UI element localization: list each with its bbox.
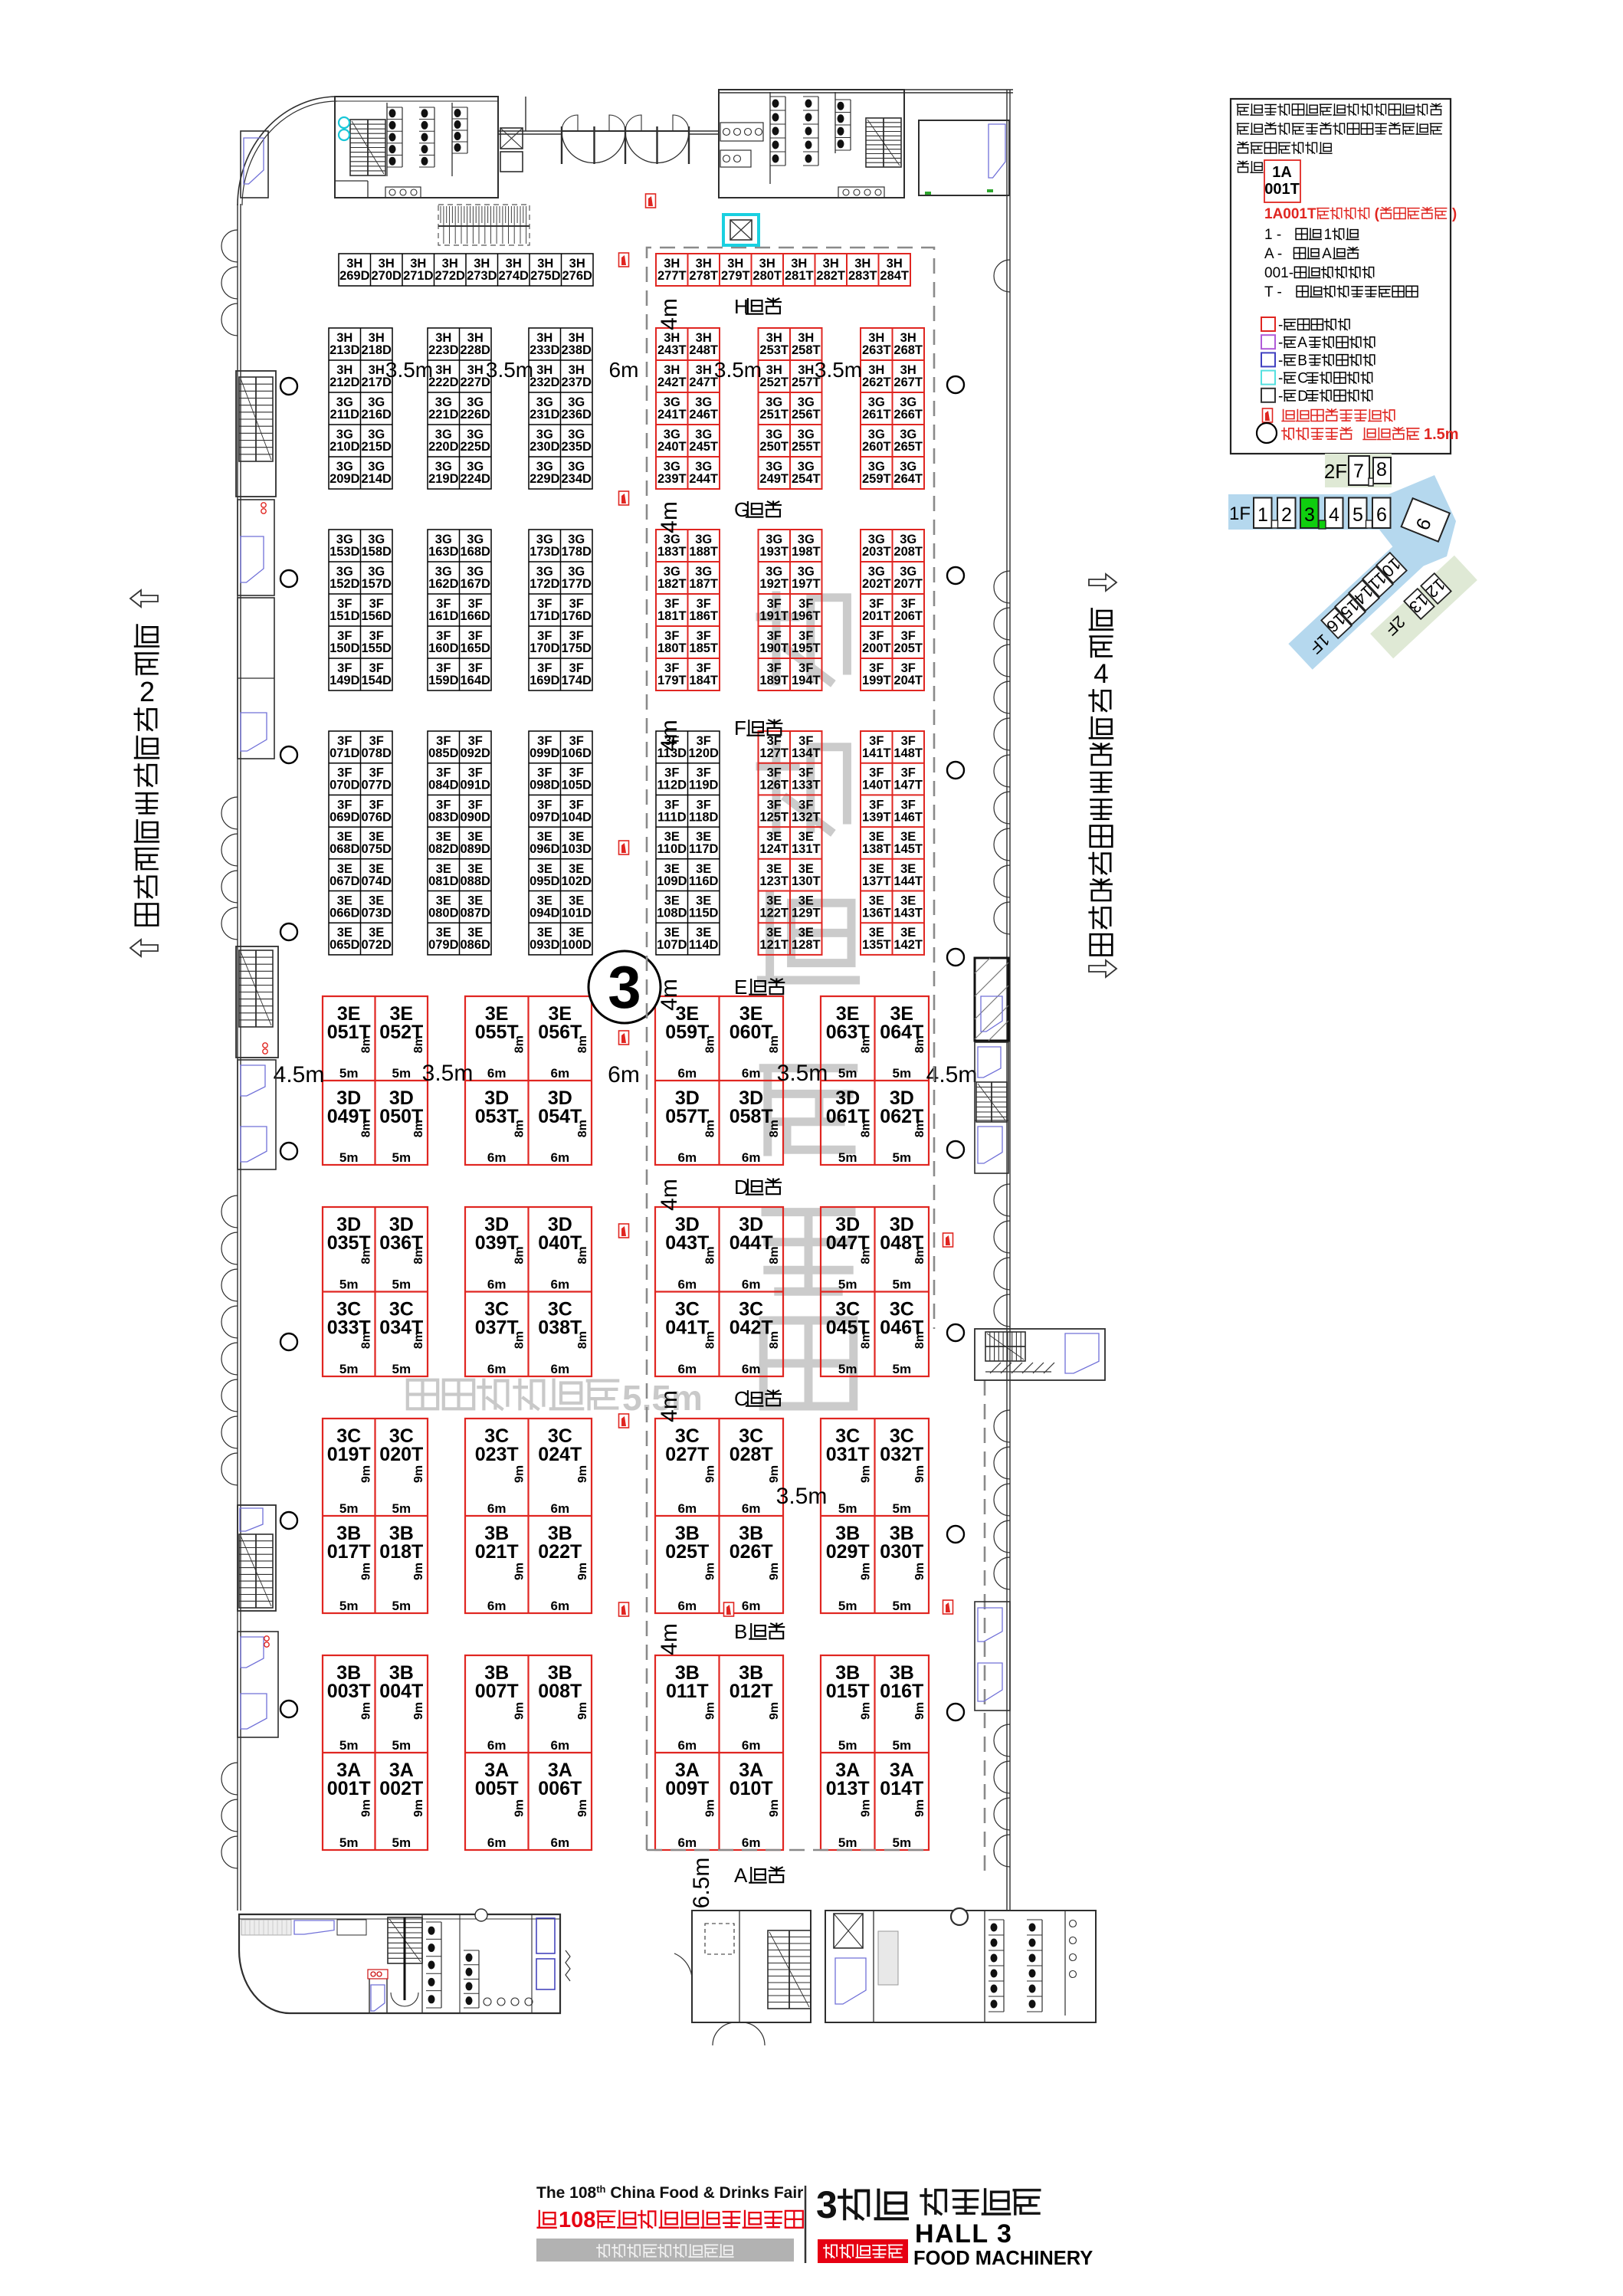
svg-text:8m: 8m <box>913 1120 926 1137</box>
svg-text:032T: 032T <box>880 1444 923 1465</box>
svg-text:175D: 175D <box>561 641 592 655</box>
svg-text:6m: 6m <box>678 1835 697 1850</box>
svg-text:255T: 255T <box>792 440 821 454</box>
svg-text:178D: 178D <box>561 545 592 559</box>
svg-text:150D: 150D <box>330 641 360 655</box>
svg-text:089D: 089D <box>460 842 490 856</box>
svg-text:174D: 174D <box>561 674 592 687</box>
svg-text:6m: 6m <box>487 1501 507 1516</box>
svg-text:143T: 143T <box>893 907 923 920</box>
svg-text:253T: 253T <box>759 343 789 357</box>
svg-text:108: 108 <box>559 2208 595 2232</box>
svg-text:6m: 6m <box>487 1150 507 1165</box>
svg-text:275D: 275D <box>530 269 561 283</box>
svg-text:5m: 5m <box>339 1501 359 1516</box>
svg-text:212D: 212D <box>330 376 360 389</box>
svg-text:039T: 039T <box>475 1232 519 1254</box>
svg-text:115D: 115D <box>689 907 719 920</box>
svg-text:6m: 6m <box>487 1738 507 1753</box>
svg-text:158D: 158D <box>361 545 392 559</box>
svg-text:3.5m: 3.5m <box>776 1484 828 1509</box>
svg-text:5m: 5m <box>838 1599 857 1613</box>
svg-text:131T: 131T <box>792 842 821 856</box>
svg-text:1: 1 <box>1324 227 1333 243</box>
svg-text:279T: 279T <box>721 269 750 283</box>
svg-text:160D: 160D <box>428 641 459 655</box>
svg-text:224D: 224D <box>460 472 490 486</box>
svg-text:130T: 130T <box>792 874 821 888</box>
svg-text:8m: 8m <box>513 1035 526 1053</box>
svg-text:093D: 093D <box>530 938 560 952</box>
svg-text:136T: 136T <box>862 907 891 920</box>
svg-text:171D: 171D <box>530 609 560 623</box>
svg-text:9m: 9m <box>913 1563 926 1580</box>
svg-text:254T: 254T <box>792 472 821 486</box>
svg-text:198T: 198T <box>792 545 821 559</box>
svg-text:187T: 187T <box>689 577 718 591</box>
svg-text:148T: 148T <box>893 746 923 760</box>
svg-text:194T: 194T <box>792 674 821 687</box>
svg-text:088D: 088D <box>460 874 490 888</box>
svg-text:038T: 038T <box>538 1317 582 1339</box>
svg-text:280T: 280T <box>752 269 782 283</box>
svg-text:144T: 144T <box>893 874 923 888</box>
svg-text:281T: 281T <box>785 269 814 283</box>
svg-text:065D: 065D <box>330 938 360 952</box>
svg-text:8m: 8m <box>360 1120 373 1137</box>
svg-text:120D: 120D <box>688 746 719 760</box>
svg-text:162D: 162D <box>428 577 459 591</box>
svg-text:6m: 6m <box>742 1501 761 1516</box>
svg-text:228D: 228D <box>460 343 490 357</box>
svg-text:066D: 066D <box>330 907 360 920</box>
svg-text:098D: 098D <box>530 779 560 792</box>
svg-text:3: 3 <box>816 2183 838 2226</box>
svg-text:229D: 229D <box>530 472 560 486</box>
svg-text:1F: 1F <box>1229 503 1251 524</box>
svg-text:3.5m: 3.5m <box>486 358 533 382</box>
svg-text:6m: 6m <box>551 1150 570 1165</box>
svg-text:209D: 209D <box>330 472 360 486</box>
svg-text:001T: 001T <box>1264 181 1300 198</box>
svg-text:099D: 099D <box>530 746 560 760</box>
svg-text:202T: 202T <box>862 577 891 591</box>
svg-text:9m: 9m <box>513 1702 526 1720</box>
svg-text:248T: 248T <box>689 343 718 357</box>
svg-text:266T: 266T <box>893 408 923 421</box>
svg-text:5m: 5m <box>339 1150 359 1165</box>
svg-text:9m: 9m <box>576 1563 589 1580</box>
svg-text:6m: 6m <box>678 1362 697 1376</box>
svg-text:231D: 231D <box>530 408 560 421</box>
svg-text:167D: 167D <box>460 577 490 591</box>
svg-text:111D: 111D <box>657 810 687 824</box>
svg-text:8m: 8m <box>704 1035 717 1053</box>
svg-text:263T: 263T <box>862 343 891 357</box>
svg-text:233D: 233D <box>530 343 560 357</box>
svg-text:074D: 074D <box>361 874 392 888</box>
svg-text:087D: 087D <box>460 907 490 920</box>
svg-text:024T: 024T <box>538 1444 582 1465</box>
svg-text:119D: 119D <box>689 779 719 792</box>
svg-text:245T: 245T <box>689 440 718 454</box>
svg-text:3.5m: 3.5m <box>815 358 862 382</box>
svg-text:277T: 277T <box>657 269 687 283</box>
svg-text:5m: 5m <box>838 1066 857 1081</box>
svg-text:4m: 4m <box>657 1179 682 1211</box>
svg-text:2: 2 <box>1281 504 1292 526</box>
svg-text:243T: 243T <box>657 343 687 357</box>
svg-text:225D: 225D <box>460 440 490 454</box>
svg-text:211D: 211D <box>330 408 360 421</box>
svg-text:208T: 208T <box>893 545 923 559</box>
svg-text:009T: 009T <box>665 1778 709 1799</box>
svg-text:082D: 082D <box>428 842 459 856</box>
svg-text:268T: 268T <box>893 343 923 357</box>
svg-text:219D: 219D <box>428 472 459 486</box>
svg-text:173D: 173D <box>530 545 560 559</box>
svg-text:091D: 091D <box>460 779 490 792</box>
svg-text:067D: 067D <box>330 874 360 888</box>
svg-text:182T: 182T <box>657 577 687 591</box>
svg-text:195T: 195T <box>792 641 821 655</box>
svg-text:070D: 070D <box>330 779 360 792</box>
svg-text:019T: 019T <box>327 1444 371 1465</box>
svg-text:267T: 267T <box>893 376 923 389</box>
svg-text:1.5m: 1.5m <box>1424 426 1459 443</box>
svg-text:2F: 2F <box>1324 460 1347 483</box>
svg-text:165D: 165D <box>460 641 490 655</box>
svg-text:8m: 8m <box>913 1246 926 1264</box>
svg-text:172D: 172D <box>530 577 560 591</box>
svg-text:238D: 238D <box>561 343 592 357</box>
svg-text:161D: 161D <box>428 609 459 623</box>
svg-text:8m: 8m <box>360 1246 373 1264</box>
svg-text:5m: 5m <box>392 1150 411 1165</box>
svg-text:092D: 092D <box>460 746 490 760</box>
svg-text:053T: 053T <box>475 1106 519 1127</box>
svg-text:B: B <box>734 1620 747 1643</box>
svg-text:020T: 020T <box>379 1444 423 1465</box>
svg-text:2: 2 <box>139 676 155 707</box>
svg-text:109D: 109D <box>657 874 687 888</box>
svg-text:168D: 168D <box>460 545 490 559</box>
svg-text:085D: 085D <box>428 746 459 760</box>
svg-text:265T: 265T <box>893 440 923 454</box>
svg-text:011T: 011T <box>666 1681 709 1702</box>
svg-text:5m: 5m <box>392 1278 411 1292</box>
svg-text:100D: 100D <box>561 938 592 952</box>
svg-text:8m: 8m <box>860 1246 873 1264</box>
svg-text:084D: 084D <box>428 779 459 792</box>
svg-text:104D: 104D <box>561 810 592 824</box>
svg-text:6m: 6m <box>678 1501 697 1516</box>
svg-text:9m: 9m <box>576 1465 589 1483</box>
svg-text:234D: 234D <box>561 472 592 486</box>
svg-text:278T: 278T <box>689 269 718 283</box>
svg-text:118D: 118D <box>689 810 719 824</box>
svg-text:9m: 9m <box>860 1563 873 1580</box>
svg-text:250T: 250T <box>759 440 789 454</box>
svg-text:276D: 276D <box>562 269 592 283</box>
svg-text:9m: 9m <box>412 1702 425 1720</box>
svg-text:8m: 8m <box>513 1120 526 1137</box>
svg-text:9m: 9m <box>913 1465 926 1483</box>
svg-text:043T: 043T <box>665 1232 709 1254</box>
svg-text:176D: 176D <box>561 609 592 623</box>
svg-text:E: E <box>734 976 747 999</box>
svg-text:037T: 037T <box>475 1317 519 1339</box>
svg-text:6m: 6m <box>742 1835 761 1850</box>
svg-text:139T: 139T <box>862 810 891 824</box>
svg-text:5m: 5m <box>392 1501 411 1516</box>
svg-text:6m: 6m <box>742 1362 761 1376</box>
svg-text:T -: T - <box>1264 284 1282 300</box>
svg-text:6m: 6m <box>551 1501 570 1516</box>
svg-text:079D: 079D <box>428 938 459 952</box>
svg-text:152D: 152D <box>330 577 360 591</box>
svg-text:6m: 6m <box>551 1066 570 1081</box>
svg-text:188T: 188T <box>689 545 718 559</box>
svg-text:3.5m: 3.5m <box>777 1061 828 1086</box>
svg-text:124T: 124T <box>759 842 789 856</box>
svg-text:3.5m: 3.5m <box>422 1061 474 1086</box>
svg-text:185T: 185T <box>689 641 718 655</box>
svg-text:FOOD MACHINERY: FOOD MACHINERY <box>913 2248 1093 2269</box>
svg-text:6m: 6m <box>609 358 639 382</box>
svg-text:5m: 5m <box>392 1738 411 1753</box>
svg-text:008T: 008T <box>538 1681 582 1702</box>
svg-text:157D: 157D <box>361 577 392 591</box>
svg-text:8m: 8m <box>704 1331 717 1349</box>
svg-text:8m: 8m <box>704 1120 717 1137</box>
svg-text:149D: 149D <box>330 674 360 687</box>
svg-text:232D: 232D <box>530 376 560 389</box>
svg-text:097D: 097D <box>530 810 560 824</box>
svg-text:3: 3 <box>608 953 641 1021</box>
svg-text:205T: 205T <box>893 641 923 655</box>
svg-text:072D: 072D <box>361 938 392 952</box>
svg-text:221D: 221D <box>428 408 459 421</box>
svg-text:4m: 4m <box>657 298 682 330</box>
svg-text:068D: 068D <box>330 842 360 856</box>
svg-text:-: - <box>1278 317 1283 333</box>
svg-text:142T: 142T <box>893 938 923 952</box>
svg-text:023T: 023T <box>475 1444 519 1465</box>
svg-text:9m: 9m <box>412 1563 425 1580</box>
svg-text:103D: 103D <box>561 842 592 856</box>
svg-text:105D: 105D <box>561 779 592 792</box>
svg-text:126T: 126T <box>759 779 789 792</box>
svg-text:5m: 5m <box>893 1738 912 1753</box>
svg-text:071D: 071D <box>330 746 360 760</box>
svg-text:9m: 9m <box>576 1799 589 1817</box>
svg-text:9m: 9m <box>360 1799 373 1817</box>
svg-text:196T: 196T <box>792 609 821 623</box>
svg-text:273D: 273D <box>467 269 497 283</box>
svg-text:135T: 135T <box>862 938 891 952</box>
svg-text:137T: 137T <box>862 874 891 888</box>
svg-text:5m: 5m <box>392 1599 411 1613</box>
svg-text:246T: 246T <box>689 408 718 421</box>
svg-text:5m: 5m <box>838 1501 857 1516</box>
svg-text:6m: 6m <box>487 1599 507 1613</box>
svg-text:3.5m: 3.5m <box>385 358 433 382</box>
svg-text:012T: 012T <box>730 1681 773 1702</box>
svg-text:9m: 9m <box>704 1465 717 1483</box>
svg-text:1: 1 <box>1257 504 1268 526</box>
svg-text:076D: 076D <box>361 810 392 824</box>
svg-text:251T: 251T <box>759 408 789 421</box>
svg-text:013T: 013T <box>826 1778 870 1799</box>
svg-text:8m: 8m <box>768 1331 781 1349</box>
svg-text:193T: 193T <box>759 545 789 559</box>
svg-text:057T: 057T <box>665 1106 709 1127</box>
svg-text:223D: 223D <box>428 343 459 357</box>
svg-text:015T: 015T <box>826 1681 870 1702</box>
svg-text:110D: 110D <box>657 842 687 856</box>
svg-text:026T: 026T <box>730 1541 773 1563</box>
svg-text:8: 8 <box>1376 459 1387 481</box>
svg-text:1 -: 1 - <box>1264 227 1281 243</box>
svg-text:5m: 5m <box>893 1150 912 1165</box>
svg-text:200T: 200T <box>862 641 891 655</box>
svg-text:040T: 040T <box>538 1232 582 1254</box>
svg-text:8m: 8m <box>412 1035 425 1053</box>
svg-text:241T: 241T <box>657 408 687 421</box>
svg-text:6m: 6m <box>742 1278 761 1292</box>
svg-text:B: B <box>1297 353 1307 369</box>
svg-text:9m: 9m <box>860 1799 873 1817</box>
svg-text:9m: 9m <box>513 1563 526 1580</box>
svg-text:022T: 022T <box>538 1541 582 1563</box>
svg-text:179T: 179T <box>657 674 687 687</box>
svg-text:9m: 9m <box>360 1465 373 1483</box>
svg-text:6m: 6m <box>487 1066 507 1081</box>
svg-text:018T: 018T <box>379 1541 423 1563</box>
svg-text:169D: 169D <box>530 674 560 687</box>
svg-text:163D: 163D <box>428 545 459 559</box>
svg-text:156D: 156D <box>361 609 392 623</box>
svg-text:242T: 242T <box>657 376 687 389</box>
svg-text:6m: 6m <box>678 1066 697 1081</box>
svg-text:A: A <box>1297 335 1307 351</box>
svg-text:001T: 001T <box>327 1778 371 1799</box>
svg-text:081D: 081D <box>428 874 459 888</box>
svg-text:027T: 027T <box>665 1444 709 1465</box>
svg-text:220D: 220D <box>428 440 459 454</box>
svg-text:6m: 6m <box>678 1599 697 1613</box>
svg-text:8m: 8m <box>913 1035 926 1053</box>
svg-text:042T: 042T <box>730 1317 773 1339</box>
svg-text:9m: 9m <box>913 1799 926 1817</box>
svg-text:191T: 191T <box>759 609 789 623</box>
svg-text:207T: 207T <box>893 577 923 591</box>
svg-text:8m: 8m <box>913 1331 926 1349</box>
svg-text:6m: 6m <box>608 1062 640 1087</box>
svg-text:4.5m: 4.5m <box>274 1062 325 1087</box>
svg-text:9m: 9m <box>704 1799 717 1817</box>
svg-text:4: 4 <box>1329 504 1339 526</box>
svg-text:017T: 017T <box>327 1541 371 1563</box>
svg-text:9m: 9m <box>704 1563 717 1580</box>
svg-text:4m: 4m <box>657 1390 682 1422</box>
svg-text:206T: 206T <box>893 609 923 623</box>
svg-text:6m: 6m <box>487 1278 507 1292</box>
svg-text:5m: 5m <box>893 1599 912 1613</box>
svg-text:003T: 003T <box>327 1681 371 1702</box>
svg-text:166D: 166D <box>460 609 490 623</box>
svg-text:5m: 5m <box>339 1835 359 1850</box>
svg-text:106D: 106D <box>561 746 592 760</box>
svg-text:5m: 5m <box>392 1835 411 1850</box>
svg-text:8m: 8m <box>412 1120 425 1137</box>
svg-text:164D: 164D <box>460 674 490 687</box>
svg-text:8m: 8m <box>360 1035 373 1053</box>
svg-text:001-: 001- <box>1264 265 1293 281</box>
svg-text:114D: 114D <box>689 938 719 952</box>
svg-text:A: A <box>1322 246 1332 262</box>
svg-text:059T: 059T <box>665 1022 709 1043</box>
svg-text:258T: 258T <box>792 343 821 357</box>
svg-text:002T: 002T <box>379 1778 423 1799</box>
svg-text:146T: 146T <box>893 810 923 824</box>
svg-text:226D: 226D <box>460 408 490 421</box>
svg-text:F: F <box>734 717 746 740</box>
svg-text:102D: 102D <box>561 874 592 888</box>
svg-text:204T: 204T <box>893 674 923 687</box>
svg-text:021T: 021T <box>475 1541 519 1563</box>
svg-text:9m: 9m <box>360 1702 373 1720</box>
svg-text:005T: 005T <box>475 1778 519 1799</box>
svg-text:6: 6 <box>1376 504 1387 526</box>
svg-text:5m: 5m <box>392 1362 411 1376</box>
svg-text:154D: 154D <box>361 674 392 687</box>
svg-text:028T: 028T <box>730 1444 773 1465</box>
svg-text:230D: 230D <box>530 440 560 454</box>
svg-text:9m: 9m <box>768 1799 781 1817</box>
svg-text:9m: 9m <box>768 1702 781 1720</box>
svg-text:283T: 283T <box>848 269 877 283</box>
svg-text:183T: 183T <box>657 545 687 559</box>
svg-text:189T: 189T <box>759 674 789 687</box>
svg-text:A: A <box>734 1864 748 1887</box>
svg-text:134T: 134T <box>792 746 821 760</box>
svg-text:007T: 007T <box>475 1681 519 1702</box>
svg-text:9m: 9m <box>513 1465 526 1483</box>
svg-text:HALL 3: HALL 3 <box>915 2219 1012 2248</box>
svg-text:8m: 8m <box>412 1331 425 1349</box>
svg-text:4m: 4m <box>657 1623 682 1655</box>
svg-text:8m: 8m <box>704 1246 717 1264</box>
svg-text:186T: 186T <box>689 609 718 623</box>
svg-text:069D: 069D <box>330 810 360 824</box>
svg-text:260T: 260T <box>862 440 891 454</box>
svg-text:5m: 5m <box>339 1278 359 1292</box>
svg-text:132T: 132T <box>792 810 821 824</box>
svg-text:3.5m: 3.5m <box>714 358 762 382</box>
svg-text:274D: 274D <box>498 269 529 283</box>
svg-text:-: - <box>1278 353 1283 369</box>
svg-text:122T: 122T <box>759 907 789 920</box>
svg-text:8m: 8m <box>360 1331 373 1349</box>
svg-text:177D: 177D <box>561 577 592 591</box>
svg-text:6m: 6m <box>551 1835 570 1850</box>
svg-text:078D: 078D <box>361 746 392 760</box>
svg-text:201T: 201T <box>862 609 891 623</box>
svg-text:9m: 9m <box>768 1465 781 1483</box>
svg-text:-: - <box>1278 371 1283 387</box>
